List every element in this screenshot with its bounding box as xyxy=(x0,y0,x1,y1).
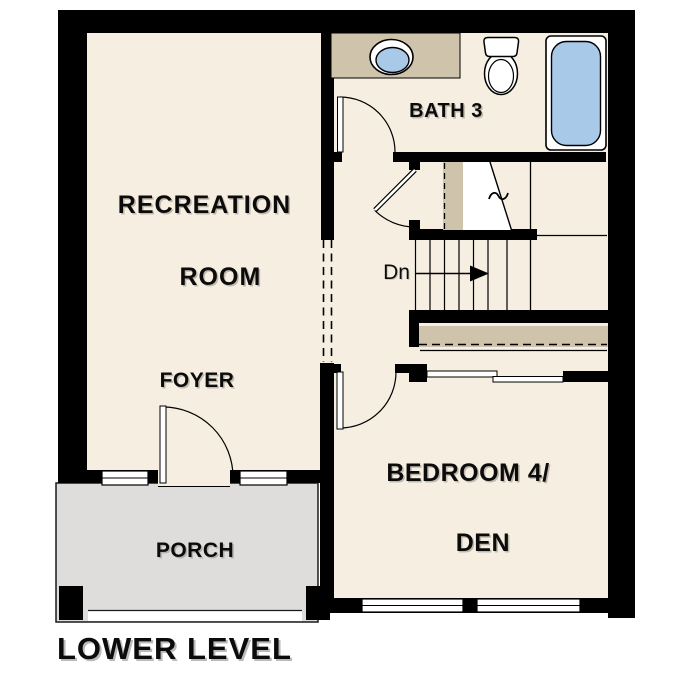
wall-bedroom-top-block xyxy=(409,364,427,382)
front-door-leaf xyxy=(160,406,166,483)
bedroom-label: BEDROOM 4/ DEN xyxy=(368,456,568,561)
wall-top xyxy=(58,10,635,33)
wall-bath-bottom xyxy=(393,152,606,162)
bathtub-icon xyxy=(546,36,606,150)
front-door-opening xyxy=(158,470,230,486)
porch-step-notch xyxy=(88,611,302,621)
stairs-down-label: Dn xyxy=(348,262,410,283)
sink-basin-icon xyxy=(376,48,409,73)
porch-pillar-left xyxy=(59,586,83,620)
wall-stair-mid-bar xyxy=(409,229,537,240)
porch-label: PORCH xyxy=(135,540,255,561)
wall-bedroom-top-right xyxy=(563,371,608,382)
wall-bath-bottom-left-stub xyxy=(332,152,342,162)
wall-stair-left-cap xyxy=(409,323,419,347)
page-title: LOWER LEVEL xyxy=(57,633,457,664)
bedroom-line1: BEDROOM 4/ xyxy=(386,459,549,487)
bath-door-leaf xyxy=(338,97,344,152)
foyer-label: FOYER xyxy=(137,370,257,391)
recreation-room-label: RECREATION ROOM xyxy=(87,187,322,295)
bedroom-line2: DEN xyxy=(456,529,510,557)
recreation-line1: RECREATION xyxy=(118,191,291,219)
stair-upper-landing-strip xyxy=(443,162,463,230)
wall-stair-bottom-bar xyxy=(409,310,635,323)
floor-plan-drawing xyxy=(0,0,687,687)
toilet-icon xyxy=(484,38,519,95)
floor-plan-page: RECREATION ROOM BATH 3 FOYER BEDROOM 4/ … xyxy=(0,0,687,687)
wall-stair-door-upper-stub xyxy=(409,152,420,170)
wall-rec-bedroom-lower xyxy=(320,363,334,613)
bedroom-door-leaf xyxy=(337,372,343,429)
recreation-line2: ROOM xyxy=(180,263,262,291)
bath-label: BATH 3 xyxy=(386,101,506,121)
bedroom-partition-pane-left xyxy=(427,371,497,377)
bedroom-partition-pane-right xyxy=(493,377,563,383)
wall-left xyxy=(58,10,87,483)
